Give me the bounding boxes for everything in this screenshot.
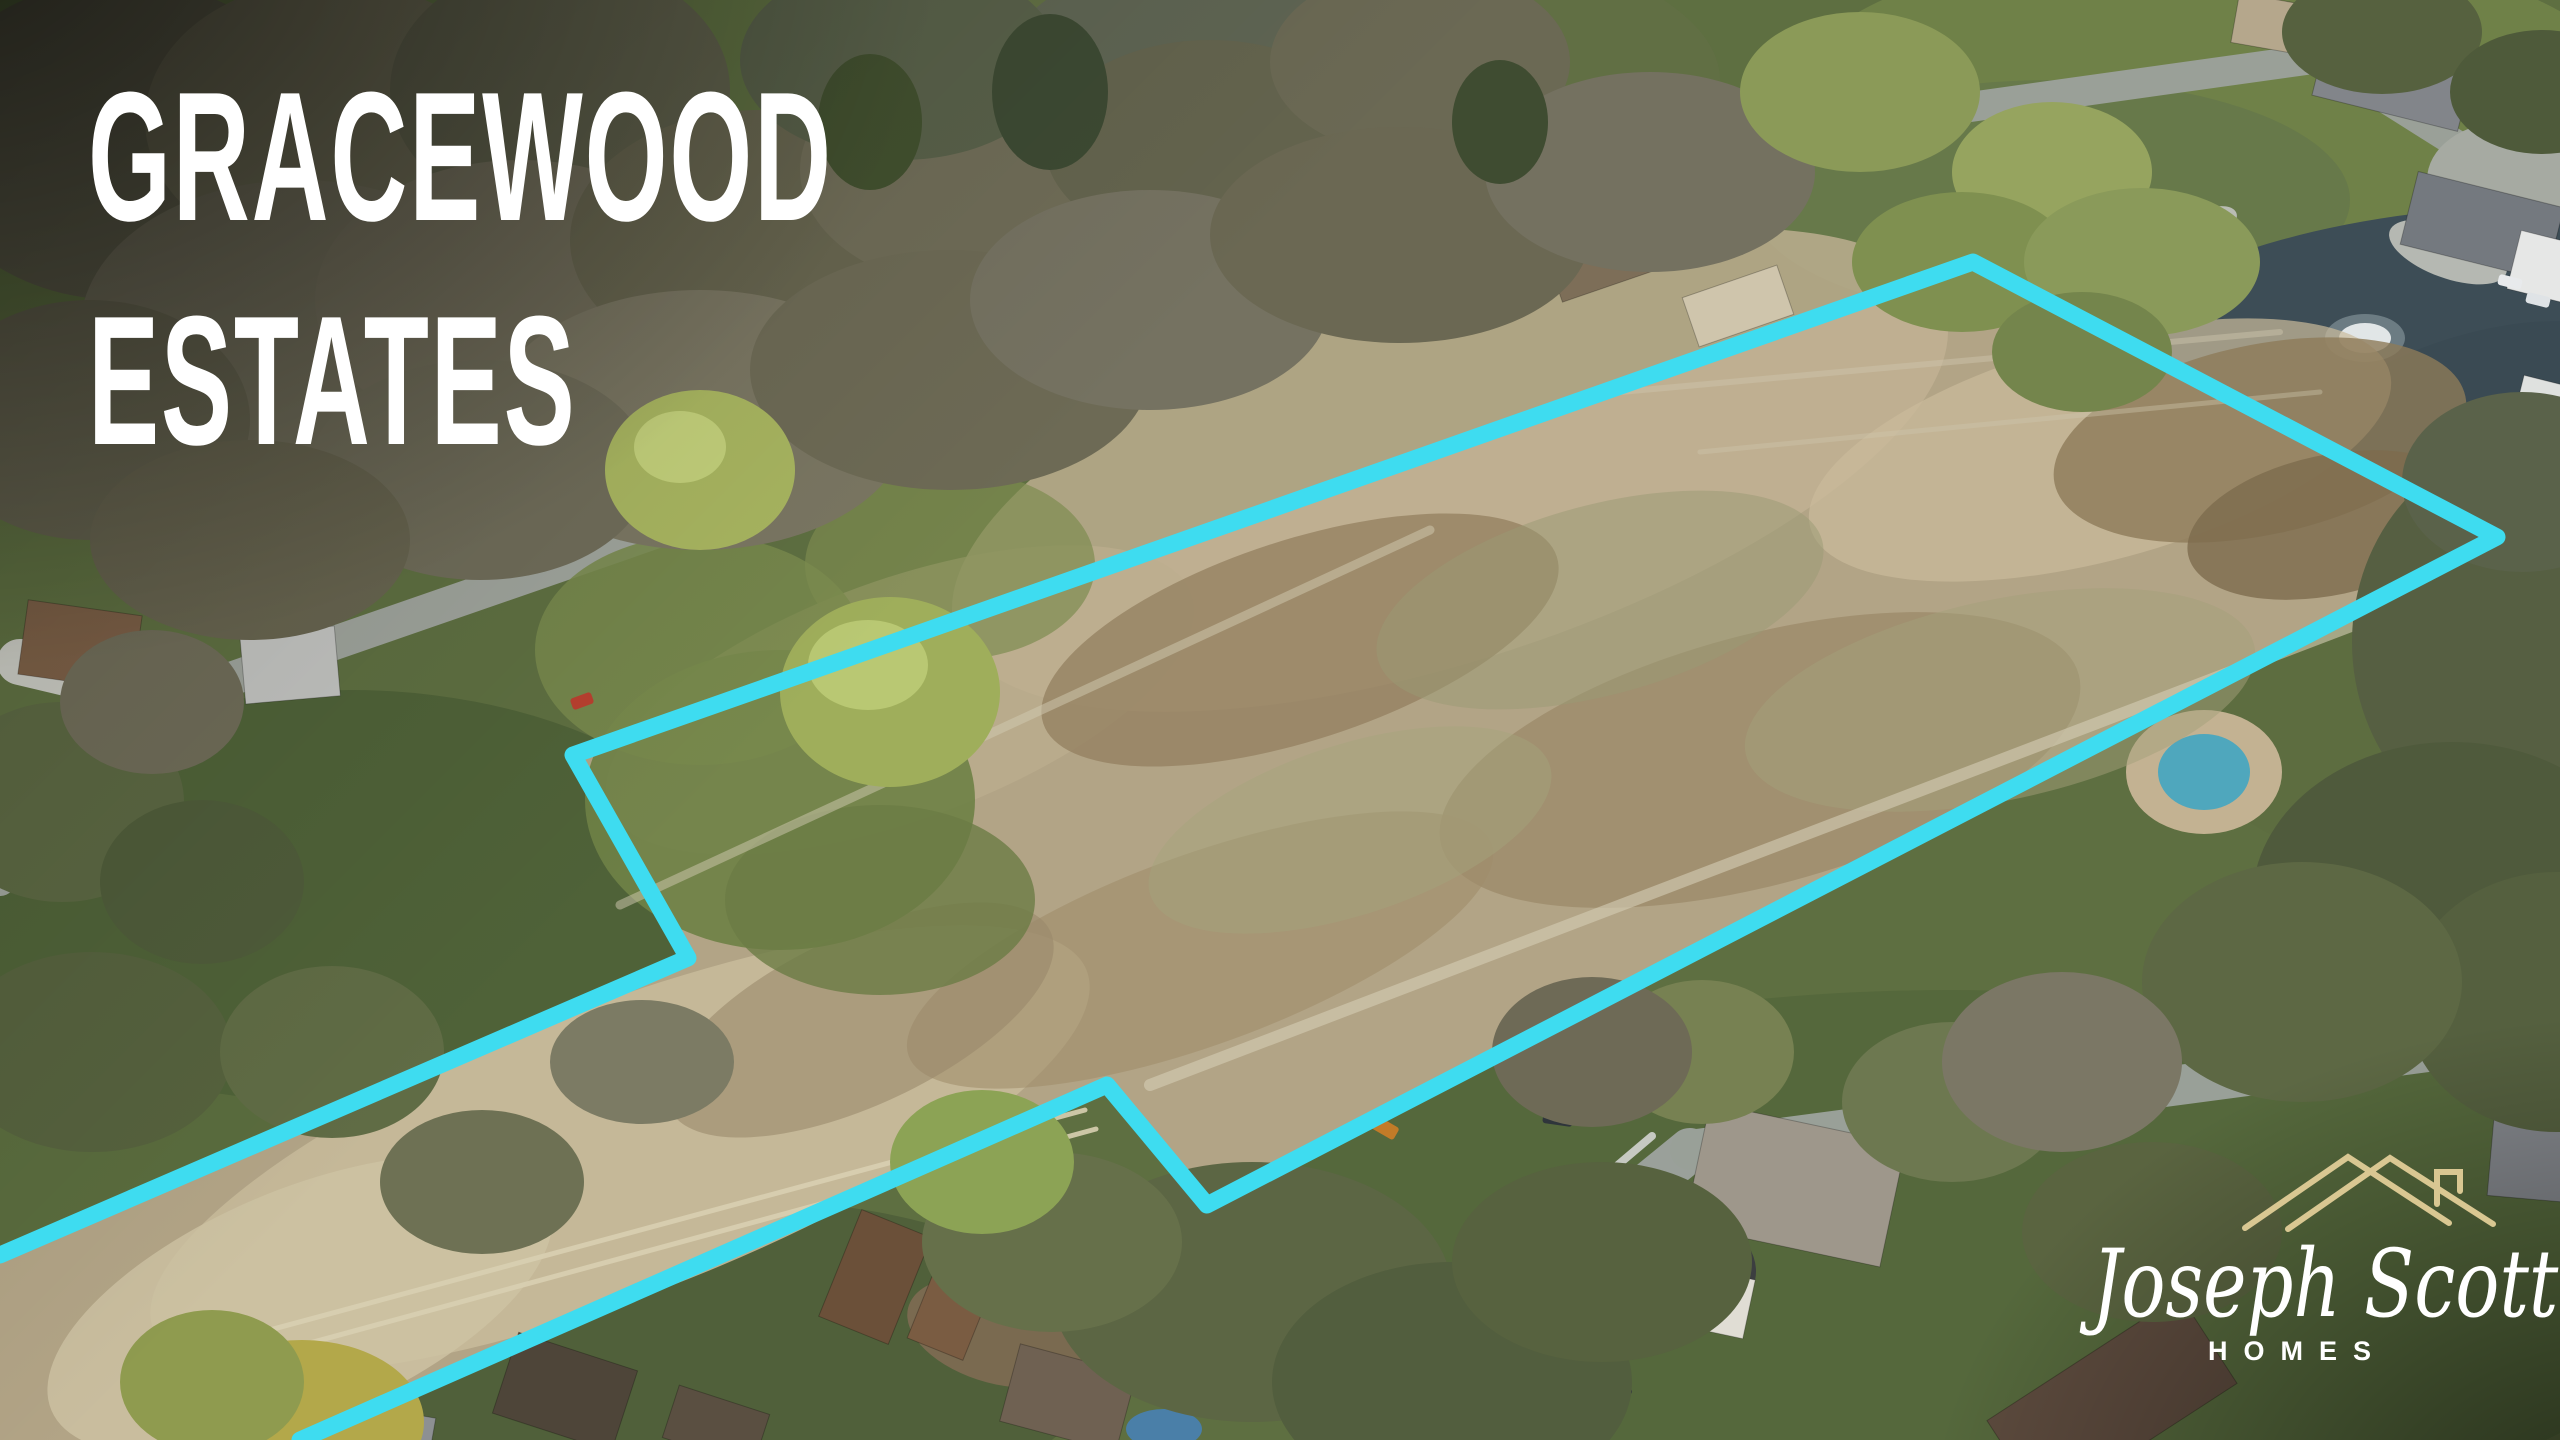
title-line-2: ESTATES xyxy=(88,288,577,472)
roof-right-gable xyxy=(2288,1158,2493,1229)
title-line-1: GRACEWOOD xyxy=(88,64,833,248)
brand-name-script: Joseph Scott xyxy=(2092,1238,2558,1332)
roof-icon xyxy=(2245,1157,2493,1229)
aerial-photo: GRACEWOOD ESTATES Joseph Scott HOMES xyxy=(0,0,2560,1440)
roof-left-gable xyxy=(2245,1157,2449,1228)
brand-subtitle: HOMES xyxy=(2208,1336,2387,1367)
